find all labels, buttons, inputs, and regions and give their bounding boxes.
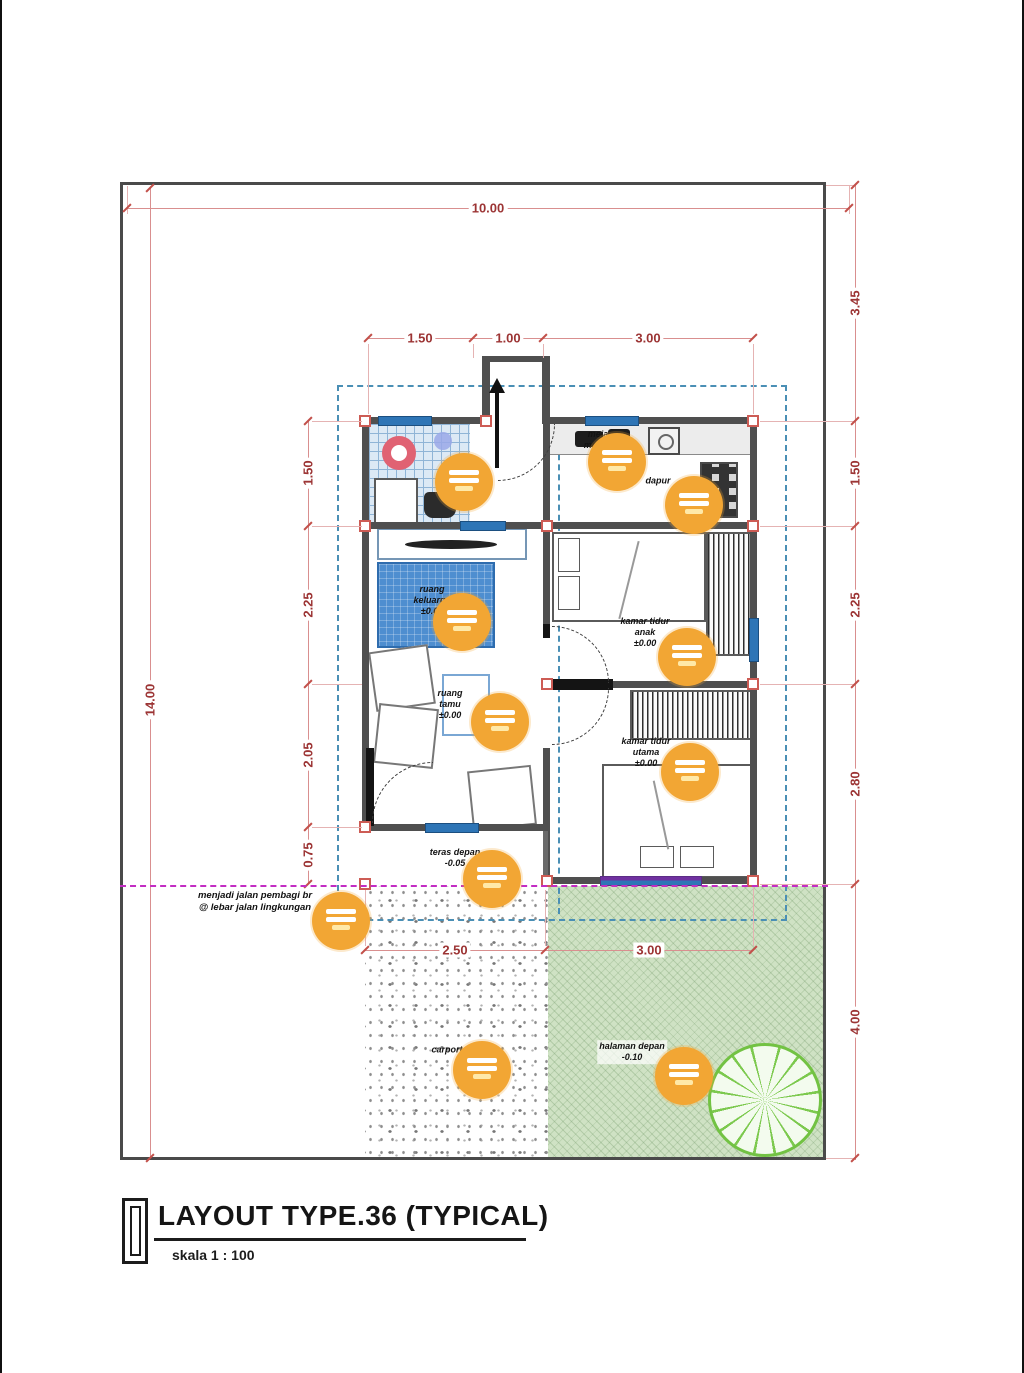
dim-label: 1.00 bbox=[492, 331, 523, 346]
left-edge-strip bbox=[0, 0, 2, 1373]
pillow bbox=[558, 576, 580, 610]
label-ruang-tamu: ruang tamu ±0.00 bbox=[437, 688, 462, 720]
dim-label: 3.00 bbox=[633, 943, 664, 958]
dim-ext bbox=[760, 421, 854, 422]
annotation-marker[interactable] bbox=[658, 628, 716, 686]
dim-ext bbox=[312, 827, 362, 828]
dim-label: 4.00 bbox=[848, 1006, 863, 1037]
vestibule-wall bbox=[542, 356, 550, 424]
sofa-chair bbox=[373, 703, 439, 769]
annotation-marker[interactable] bbox=[655, 1047, 713, 1105]
dim-label: 2.25 bbox=[848, 589, 863, 620]
pillow bbox=[680, 846, 714, 868]
dim-ext bbox=[826, 1158, 854, 1159]
column-marker bbox=[747, 678, 759, 690]
entry-arrow bbox=[495, 392, 499, 468]
title-underline bbox=[154, 1238, 526, 1241]
dim-label: 3.45 bbox=[848, 287, 863, 318]
vestibule-wall bbox=[482, 356, 550, 362]
dim-ext bbox=[760, 684, 854, 685]
label-halaman: halaman depan -0.10 bbox=[597, 1040, 667, 1064]
sofa-chair bbox=[467, 765, 537, 831]
window bbox=[749, 618, 759, 662]
dim-label: 1.50 bbox=[848, 457, 863, 488]
annotation-marker[interactable] bbox=[588, 433, 646, 491]
dim-label: 2.80 bbox=[848, 768, 863, 799]
window bbox=[425, 823, 479, 833]
dim-label: 0.75 bbox=[301, 839, 316, 870]
sofa-chair bbox=[368, 644, 436, 712]
pillow bbox=[640, 846, 674, 868]
annotation-marker[interactable] bbox=[312, 892, 370, 950]
dim-label: 14.00 bbox=[143, 681, 158, 720]
entry-arrow-head bbox=[489, 378, 505, 393]
tree-icon bbox=[708, 1043, 822, 1157]
dim-ext bbox=[753, 886, 754, 946]
column-marker bbox=[541, 520, 553, 532]
column-marker bbox=[747, 415, 759, 427]
dim-ext bbox=[127, 186, 128, 214]
dim-ext bbox=[312, 526, 362, 527]
annotation-marker[interactable] bbox=[453, 1041, 511, 1099]
wall bbox=[543, 522, 757, 529]
dim-label: 1.50 bbox=[404, 331, 435, 346]
floor-drain-icon bbox=[434, 432, 452, 450]
dim-line bbox=[365, 950, 753, 951]
pillow bbox=[558, 538, 580, 572]
dim-ext bbox=[543, 344, 544, 358]
dim-ext bbox=[473, 344, 474, 358]
dim-line bbox=[150, 188, 151, 1158]
dim-label: 3.00 bbox=[632, 331, 663, 346]
window bbox=[460, 521, 506, 531]
dim-label: 2.05 bbox=[301, 739, 316, 770]
wall bbox=[365, 522, 543, 529]
dim-ext bbox=[312, 421, 362, 422]
floorplan-canvas: menjadi jalan pembagi br @ lebar jalan l… bbox=[0, 0, 1024, 1373]
dim-label: 2.25 bbox=[301, 589, 316, 620]
wardrobe-utama bbox=[630, 690, 752, 740]
drawing-title: LAYOUT TYPE.36 (TYPICAL) bbox=[158, 1200, 549, 1232]
bath-door bbox=[374, 478, 418, 526]
label-dapur: dapur bbox=[645, 476, 670, 487]
dim-ext bbox=[753, 344, 754, 414]
dim-ext bbox=[312, 684, 362, 685]
dim-ext bbox=[760, 526, 854, 527]
annotation-marker[interactable] bbox=[661, 743, 719, 801]
dim-ext bbox=[368, 344, 369, 414]
dim-ext bbox=[545, 890, 546, 946]
wall bbox=[545, 417, 757, 424]
dim-ext bbox=[849, 186, 850, 214]
annotation-marker[interactable] bbox=[665, 476, 723, 534]
wardrobe-anak bbox=[706, 532, 752, 656]
column-marker bbox=[541, 678, 553, 690]
column-marker bbox=[359, 878, 371, 890]
sink-bowl-icon bbox=[658, 434, 674, 450]
shower-drain-icon bbox=[382, 436, 416, 470]
dim-label: 1.50 bbox=[301, 457, 316, 488]
dim-line bbox=[308, 421, 309, 884]
dim-tick bbox=[850, 1153, 859, 1162]
dim-label: 10.00 bbox=[469, 201, 508, 216]
annotation-marker[interactable] bbox=[435, 453, 493, 511]
annotation-marker[interactable] bbox=[471, 693, 529, 751]
drawing-scale: skala 1 : 100 bbox=[172, 1247, 255, 1263]
annotation-marker[interactable] bbox=[463, 850, 521, 908]
door-jamb bbox=[543, 624, 550, 638]
column-marker bbox=[480, 415, 492, 427]
column-marker bbox=[747, 520, 759, 532]
title-symbol-inner-icon bbox=[130, 1206, 141, 1256]
annotation-marker[interactable] bbox=[433, 593, 491, 651]
tv-icon bbox=[405, 540, 497, 549]
dim-ext bbox=[826, 185, 854, 186]
window bbox=[585, 416, 639, 426]
window bbox=[378, 416, 432, 426]
dim-label: 2.50 bbox=[439, 943, 470, 958]
